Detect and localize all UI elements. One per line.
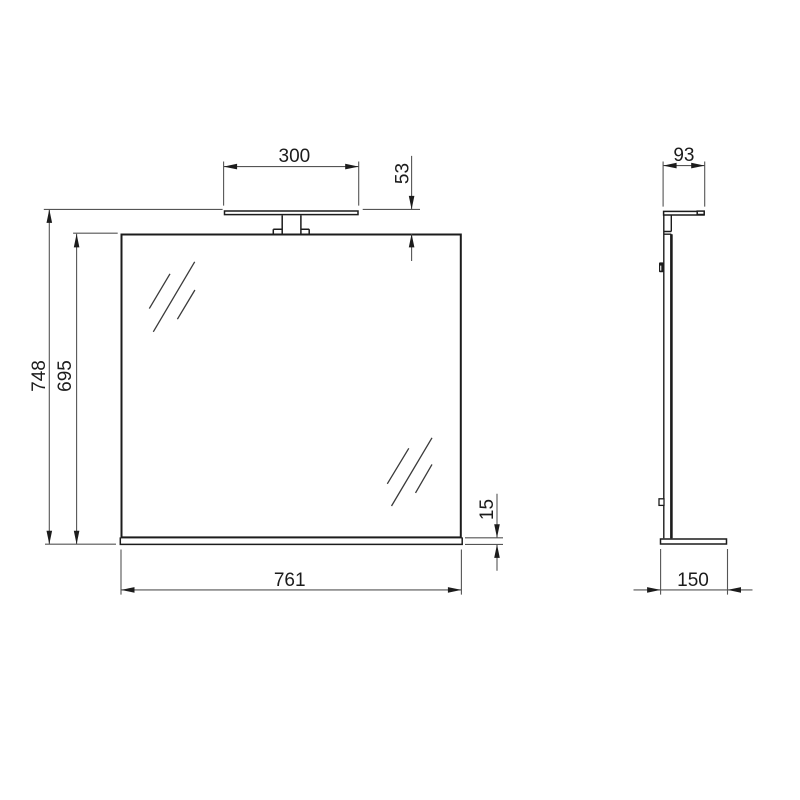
svg-text:695: 695 xyxy=(55,360,76,392)
svg-text:150: 150 xyxy=(677,570,709,591)
svg-text:93: 93 xyxy=(673,145,694,166)
svg-text:15: 15 xyxy=(477,499,498,520)
svg-text:53: 53 xyxy=(393,163,414,184)
svg-text:748: 748 xyxy=(29,360,50,392)
svg-text:300: 300 xyxy=(279,146,311,167)
svg-text:761: 761 xyxy=(274,570,306,591)
